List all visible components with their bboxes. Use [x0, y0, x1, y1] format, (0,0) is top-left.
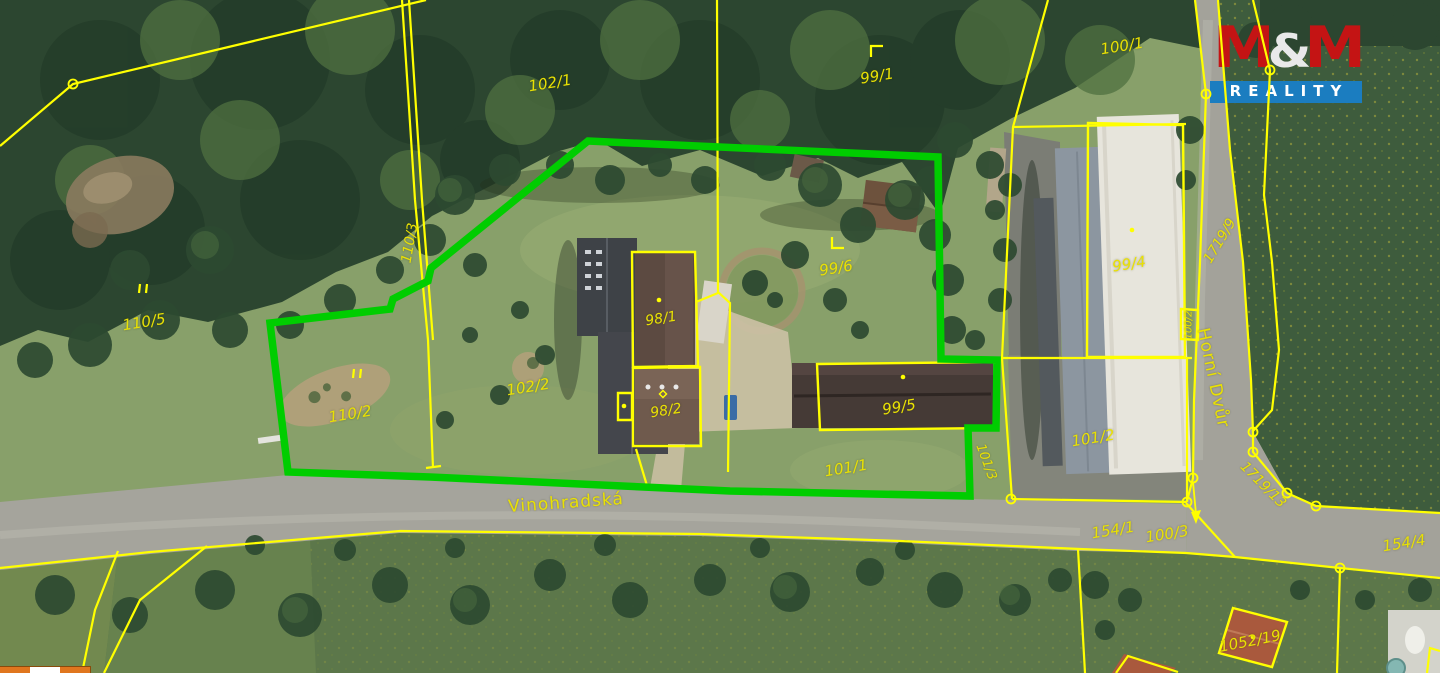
logo-reality-bar: REALITY: [1210, 81, 1362, 103]
barn-99-5: [792, 363, 993, 428]
logo-mm-text: M&M: [1210, 24, 1362, 76]
scale-bar-segment: [60, 667, 90, 673]
logo-ampersand: &: [1268, 25, 1305, 78]
barn-building: [1054, 114, 1191, 476]
map-scale-bar: [0, 666, 91, 673]
agency-logo: M&M REALITY: [1210, 24, 1362, 103]
scale-bar-segment: [0, 667, 30, 673]
aerial-cadastral-map: M&M REALITY: [0, 0, 1440, 673]
scale-bar-segment: [30, 667, 60, 673]
